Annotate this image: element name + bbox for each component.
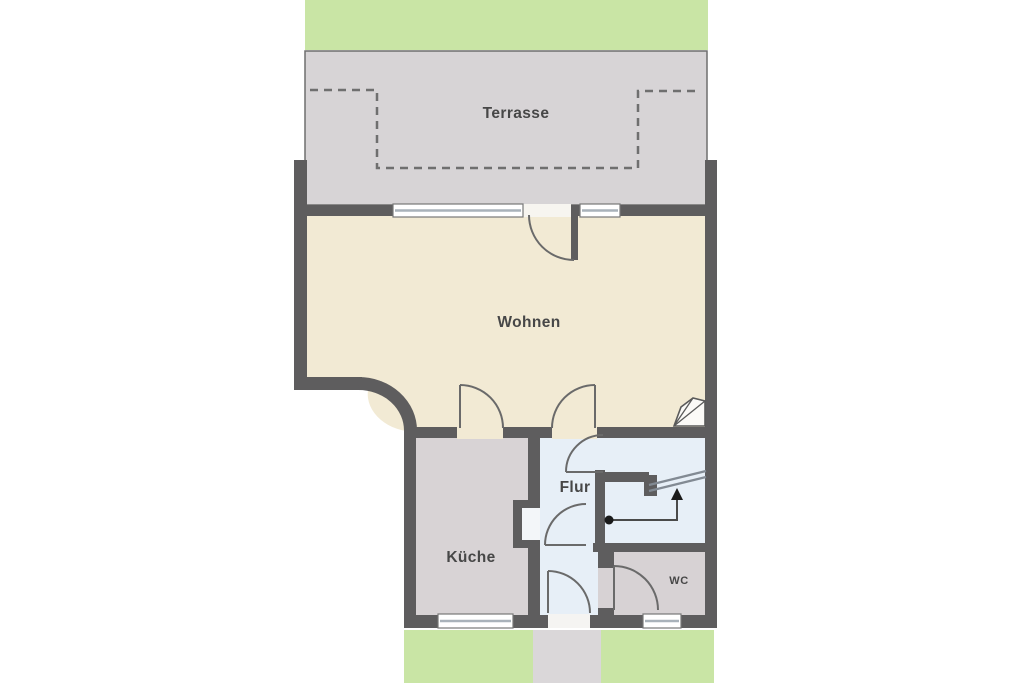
wc-label: WC (669, 575, 689, 587)
terrace-door-leaf (571, 205, 578, 260)
floor-plan-drawing: Terrasse Wohnen Küche Flur WC (0, 0, 1024, 683)
floor-plan-canvas: Terrasse Wohnen Küche Flur WC (0, 0, 1024, 683)
terrace-floor (305, 51, 707, 205)
entrance-walkway (533, 630, 601, 683)
stair-start-dot-icon (605, 516, 614, 525)
wall-left-jog (294, 377, 362, 390)
kitchen-label: Küche (446, 549, 495, 566)
garden-bottom-right (601, 630, 714, 683)
wc-door-opening (598, 568, 614, 608)
wall-stair-peninsula (603, 472, 649, 482)
wall-kitchen-left (404, 425, 416, 628)
kitchen-door-opening (457, 426, 503, 439)
living-room-label: Wohnen (497, 314, 560, 331)
wall-wc-left-lower (598, 608, 614, 628)
garden-bottom-left (404, 630, 533, 683)
wc-floor (610, 550, 708, 618)
wall-left (294, 160, 307, 390)
wall-kitchen-hall-lower (528, 540, 540, 628)
garden-top (305, 0, 708, 50)
entrance-door-opening (548, 614, 590, 628)
terrace-door-opening (523, 204, 571, 217)
wall-wc-left-upper (598, 548, 614, 568)
wall-kitchen-hall-upper (528, 430, 540, 502)
terrace-label: Terrasse (483, 105, 550, 122)
hall-label: Flur (560, 479, 591, 496)
kitchen-hatch-opening (522, 508, 540, 540)
wall-right (705, 160, 717, 628)
